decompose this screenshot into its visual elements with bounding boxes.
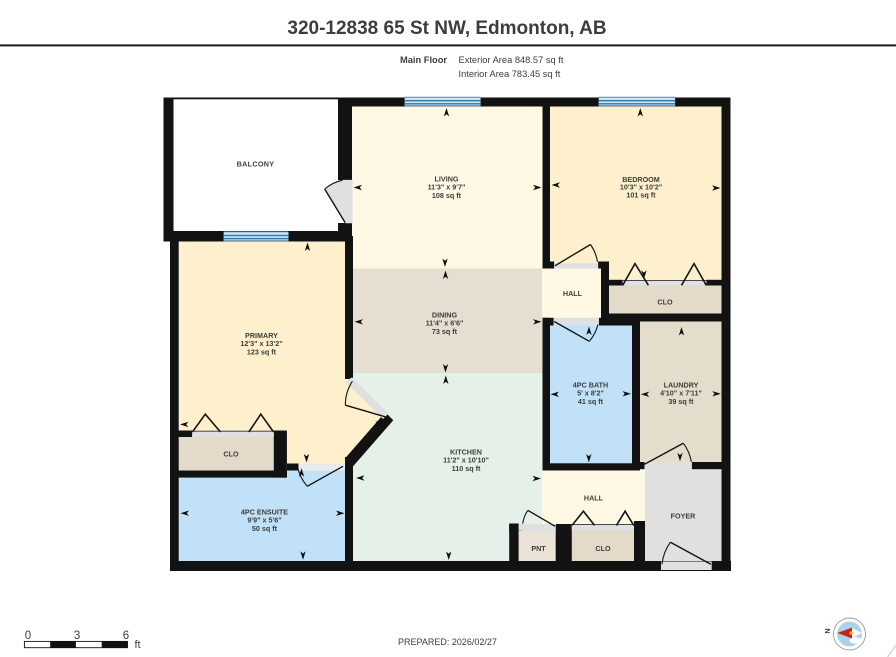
svg-text:ft: ft <box>135 639 141 651</box>
svg-text:PREPARED: 2026/02/27: PREPARED: 2026/02/27 <box>398 637 497 647</box>
svg-text:Interior Area 783.45 sq ft: Interior Area 783.45 sq ft <box>459 69 561 79</box>
svg-text:101 sq ft: 101 sq ft <box>626 191 656 200</box>
svg-text:BALCONY: BALCONY <box>237 160 275 169</box>
svg-text:41 sq ft: 41 sq ft <box>578 397 604 406</box>
svg-text:Exterior Area 848.57 sq ft: Exterior Area 848.57 sq ft <box>459 55 564 65</box>
svg-text:3: 3 <box>74 630 80 642</box>
svg-text:39 sq ft: 39 sq ft <box>668 397 694 406</box>
svg-text:0: 0 <box>25 630 31 642</box>
svg-text:320-12838 65 St NW, Edmonton,: 320-12838 65 St NW, Edmonton, AB <box>287 18 606 39</box>
svg-text:6: 6 <box>123 630 129 642</box>
svg-text:N: N <box>823 628 832 633</box>
svg-text:Main Floor: Main Floor <box>400 55 447 65</box>
svg-text:CLO: CLO <box>595 544 611 553</box>
svg-text:123 sq ft: 123 sq ft <box>247 347 277 356</box>
svg-text:PNT: PNT <box>531 544 546 553</box>
svg-text:110 sq ft: 110 sq ft <box>452 464 481 473</box>
svg-text:HALL: HALL <box>563 289 583 298</box>
svg-text:108 sq ft: 108 sq ft <box>432 191 462 200</box>
svg-text:73 sq ft: 73 sq ft <box>432 327 458 336</box>
svg-text:50 sq ft: 50 sq ft <box>252 524 278 533</box>
svg-text:CLO: CLO <box>223 450 239 459</box>
svg-text:CLO: CLO <box>657 298 673 307</box>
svg-text:FOYER: FOYER <box>671 512 697 521</box>
svg-text:HALL: HALL <box>584 494 604 503</box>
